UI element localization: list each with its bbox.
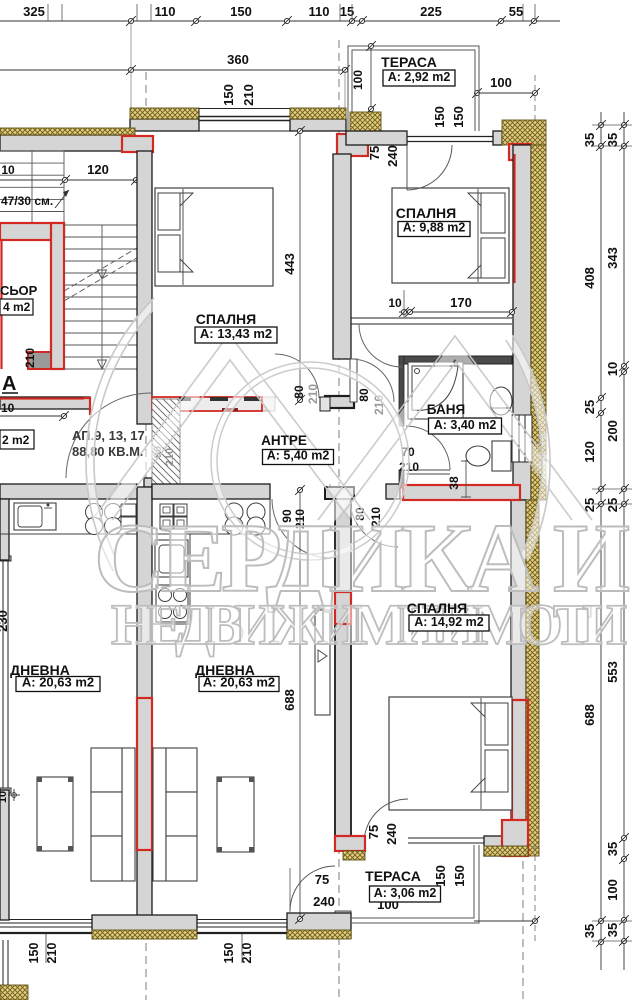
svg-text:АП.9, 13, 17: АП.9, 13, 17: [72, 428, 145, 443]
svg-text:150: 150: [27, 943, 41, 964]
svg-text:210: 210: [164, 448, 176, 466]
svg-text:35: 35: [605, 133, 620, 147]
svg-text:А: 13,43 m2: А: 13,43 m2: [200, 326, 272, 341]
svg-text:210: 210: [241, 84, 256, 106]
svg-text:А: 20,63 m2: А: 20,63 m2: [22, 675, 94, 690]
svg-text:553: 553: [605, 661, 620, 683]
svg-text:38: 38: [447, 476, 461, 490]
svg-text:688: 688: [282, 689, 297, 711]
svg-text:170: 170: [450, 295, 472, 310]
svg-text:35: 35: [605, 842, 620, 856]
svg-text:47/30 см.: 47/30 см.: [1, 194, 53, 208]
svg-text:210: 210: [45, 943, 59, 964]
svg-text:88,80 КВ.М.: 88,80 КВ.М.: [72, 444, 144, 459]
svg-text:БАНЯ: БАНЯ: [427, 402, 465, 417]
svg-text:408: 408: [582, 267, 597, 289]
svg-text:343: 343: [605, 247, 620, 269]
svg-text:150: 150: [452, 865, 467, 887]
svg-text:75: 75: [367, 146, 382, 160]
svg-text:А: 9,88 m2: А: 9,88 m2: [403, 221, 466, 235]
svg-text:10: 10: [0, 791, 9, 803]
svg-text:75: 75: [315, 872, 329, 887]
svg-text:ТЕРАСА: ТЕРАСА: [381, 54, 437, 70]
svg-text:СПАЛНЯ: СПАЛНЯ: [396, 205, 456, 221]
svg-text:110: 110: [155, 4, 176, 19]
svg-text:4 m2: 4 m2: [3, 300, 31, 314]
svg-text:10: 10: [1, 163, 15, 177]
svg-text:СПАЛНЯ: СПАЛНЯ: [196, 311, 256, 327]
svg-text:А: 2,92 m2: А: 2,92 m2: [388, 70, 451, 84]
svg-text:100: 100: [605, 879, 620, 901]
svg-text:АНТРЕ: АНТРЕ: [261, 433, 307, 448]
svg-text:СПАЛНЯ: СПАЛНЯ: [407, 600, 467, 616]
svg-text:443: 443: [282, 253, 297, 275]
svg-text:100: 100: [490, 75, 512, 90]
svg-text:240: 240: [313, 894, 335, 909]
svg-text:А: 14,92 m2: А: 14,92 m2: [414, 615, 484, 629]
svg-text:240: 240: [384, 823, 399, 845]
svg-text:2 m2: 2 m2: [2, 433, 30, 447]
svg-text:НЕДВИЖИМИ ИМОТИ: НЕДВИЖИМИ ИМОТИ: [111, 592, 627, 657]
svg-text:225: 225: [420, 4, 442, 19]
svg-text:150: 150: [230, 4, 252, 19]
svg-text:150: 150: [222, 943, 236, 964]
svg-text:240: 240: [385, 145, 400, 167]
svg-text:210: 210: [306, 384, 320, 404]
svg-text:150: 150: [451, 106, 466, 128]
svg-text:230: 230: [0, 610, 10, 632]
svg-text:110: 110: [309, 4, 330, 19]
svg-text:А: 5,40 m2: А: 5,40 m2: [267, 449, 330, 463]
svg-text:А: 3,40 m2: А: 3,40 m2: [434, 418, 497, 432]
svg-text:100: 100: [351, 70, 365, 90]
svg-text:55: 55: [509, 4, 523, 19]
svg-text:А: А: [2, 373, 16, 395]
svg-text:35: 35: [605, 923, 620, 937]
svg-text:А: 20,63 m2: А: 20,63 m2: [203, 675, 275, 690]
svg-text:35: 35: [582, 924, 597, 938]
svg-text:150: 150: [433, 865, 448, 887]
svg-text:ТЕРАСА: ТЕРАСА: [365, 868, 421, 884]
svg-text:25: 25: [582, 400, 597, 414]
svg-text:120: 120: [582, 441, 597, 463]
svg-text:10: 10: [388, 296, 402, 310]
svg-text:688: 688: [582, 704, 597, 726]
svg-text:СЬОР: СЬОР: [0, 283, 38, 298]
svg-text:А: 3,06 m2: А: 3,06 m2: [374, 886, 437, 900]
svg-text:325: 325: [23, 4, 45, 19]
svg-text:150: 150: [432, 106, 447, 128]
svg-text:35: 35: [582, 133, 597, 147]
svg-text:75: 75: [366, 825, 381, 839]
svg-text:210: 210: [23, 348, 37, 368]
svg-text:120: 120: [87, 162, 109, 177]
svg-text:200: 200: [605, 420, 620, 442]
svg-text:360: 360: [227, 52, 249, 67]
svg-text:10: 10: [1, 401, 15, 415]
svg-text:150: 150: [221, 84, 236, 106]
svg-text:10: 10: [605, 362, 620, 376]
